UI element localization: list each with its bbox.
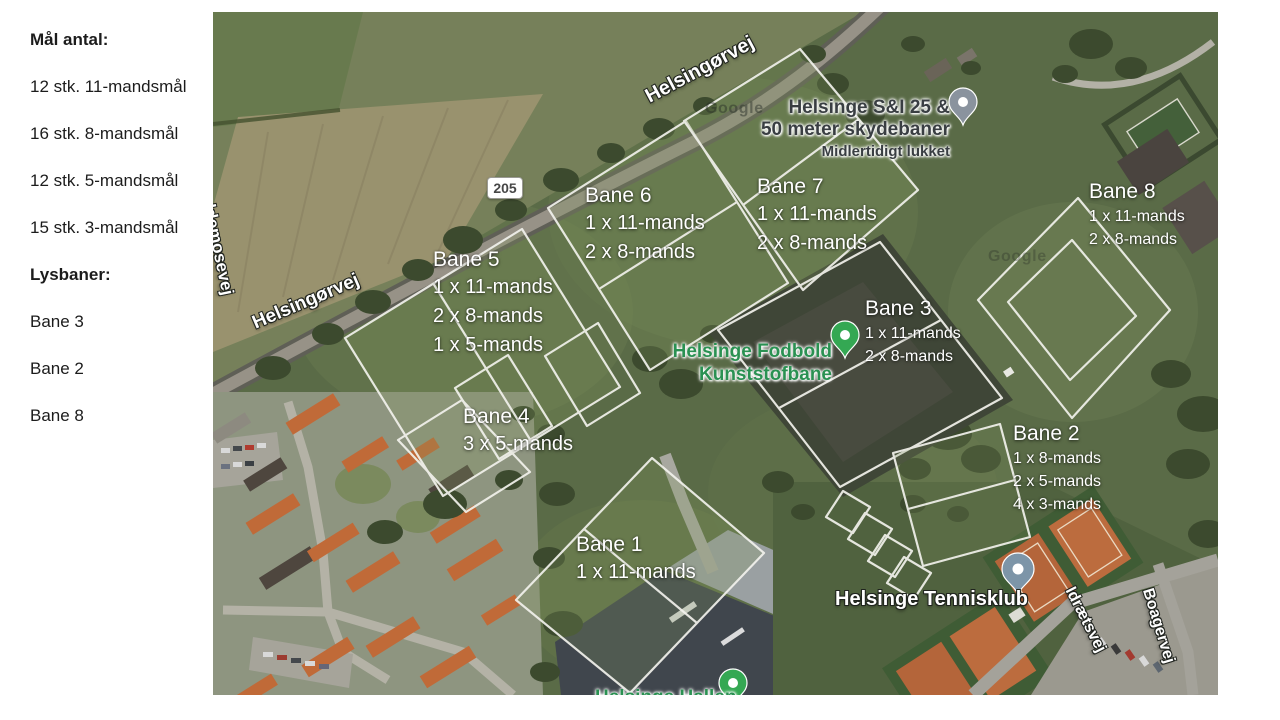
poi-tennisklub: Helsinge Tennisklub bbox=[835, 588, 1028, 611]
goals-item: 15 stk. 3-mandsmål bbox=[30, 218, 213, 238]
goals-header: Mål antal: bbox=[30, 30, 213, 50]
field-label-bane6: Bane 6 1 x 11-mands 2 x 8-mands bbox=[585, 182, 705, 267]
field-label-bane2: Bane 2 1 x 8-mands 2 x 5-mands 4 x 3-man… bbox=[1013, 420, 1101, 516]
poi-skydebaner-status: Midlertidigt lukket bbox=[650, 141, 950, 163]
satellite-map: Google Google Helsingørvej Helsingørvej … bbox=[213, 12, 1218, 695]
poi-fodbold: Helsinge Fodbold Kunststofbane bbox=[632, 340, 832, 386]
google-watermark: Google bbox=[988, 248, 1047, 266]
field-label-bane7: Bane 7 1 x 11-mands 2 x 8-mands bbox=[757, 173, 877, 258]
field-label-bane5: Bane 5 1 x 11-mands 2 x 8-mands 1 x 5-ma… bbox=[433, 246, 553, 360]
lightfields-item: Bane 8 bbox=[30, 406, 213, 426]
field-label-bane4: Bane 4 3 x 5-mands bbox=[463, 403, 573, 459]
lightfields-header: Lysbaner: bbox=[30, 265, 213, 285]
goals-item: 16 stk. 8-mandsmål bbox=[30, 124, 213, 144]
route-205-badge: 205 bbox=[487, 177, 523, 199]
lightfields-item: Bane 3 bbox=[30, 312, 213, 332]
slide: Mål antal: 12 stk. 11-mandsmål 16 stk. 8… bbox=[0, 0, 1280, 720]
field-label-bane1: Bane 1 1 x 11-mands bbox=[576, 531, 696, 587]
field-label-bane3: Bane 3 1 x 11-mands 2 x 8-mands bbox=[865, 295, 961, 368]
sidebar: Mål antal: 12 stk. 11-mandsmål 16 stk. 8… bbox=[0, 0, 213, 720]
field-label-bane8: Bane 8 1 x 11-mands 2 x 8-mands bbox=[1089, 178, 1185, 251]
poi-hallen: Helsinge Hallen bbox=[595, 687, 737, 695]
poi-skydebaner: Helsinge S&I 25 & 50 meter skydebaner Mi… bbox=[650, 97, 950, 163]
lightfields-item: Bane 2 bbox=[30, 359, 213, 379]
goals-item: 12 stk. 5-mandsmål bbox=[30, 171, 213, 191]
goals-item: 12 stk. 11-mandsmål bbox=[30, 77, 213, 97]
